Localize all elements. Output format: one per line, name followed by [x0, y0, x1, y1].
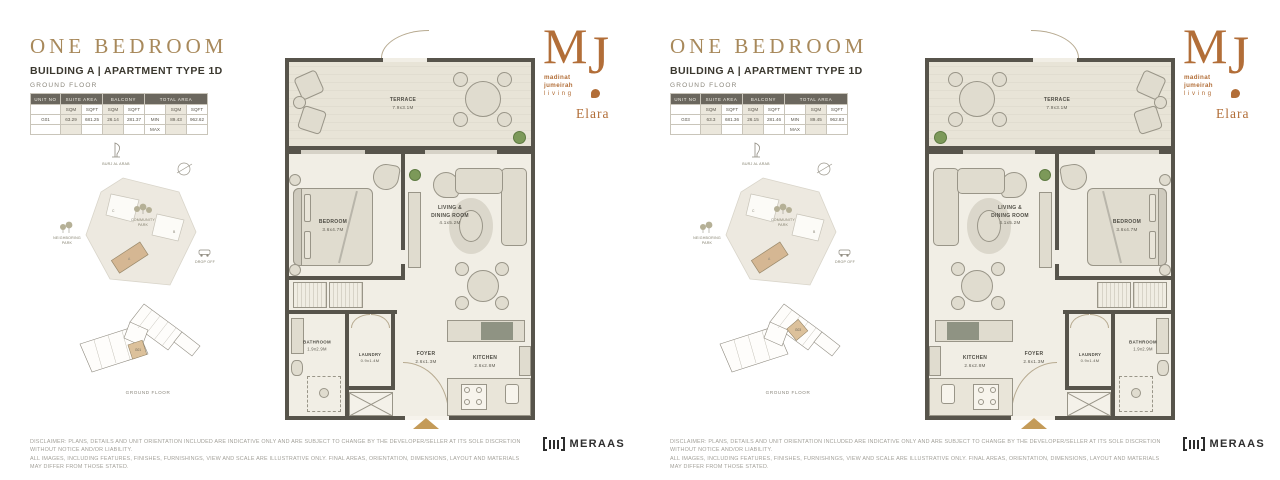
- dining-table: [961, 270, 993, 302]
- community-park-label: COMMUNITY: [771, 218, 795, 222]
- landmark-label: BURJ AL ARAB: [742, 162, 770, 166]
- bedroom-label: BEDROOM 3.6x4.7M: [319, 219, 347, 233]
- meraas-icon: [1183, 437, 1205, 451]
- side-table: [1154, 96, 1167, 109]
- dining-chair: [951, 296, 965, 310]
- project-name: Elara: [576, 106, 609, 122]
- terrace-chair: [948, 112, 963, 127]
- floor-label: GROUND FLOOR: [670, 82, 867, 89]
- floorplan-panel-right: ONE BEDROOM BUILDING A | APARTMENT TYPE …: [640, 0, 1280, 480]
- sofa-chaise: [957, 168, 1005, 194]
- nightstand: [289, 174, 301, 186]
- floor-plan: TERRACE 7.9x3.1M: [925, 28, 1175, 426]
- terrace-chair: [497, 72, 512, 87]
- key-plan-caption: GROUND FLOOR: [766, 390, 811, 395]
- sofa-chaise: [455, 168, 503, 194]
- wall: [391, 314, 395, 390]
- shower-drain: [319, 388, 329, 398]
- stove-burner: [990, 399, 996, 405]
- mj-dot-icon: [591, 89, 600, 98]
- terrace-chair: [497, 112, 512, 127]
- burj-al-arab-icon: [752, 143, 760, 157]
- nightstand: [1159, 174, 1171, 186]
- brochure-page: ONE BEDROOM BUILDING A | APARTMENT TYPE …: [0, 0, 1280, 480]
- col-balcony: BALCONY: [103, 94, 145, 105]
- wall: [1065, 386, 1111, 390]
- wardrobe: [1097, 282, 1131, 308]
- stove-burner: [978, 387, 984, 393]
- highlighted-unit-label: G03: [795, 328, 801, 332]
- svg-text:PARK: PARK: [62, 241, 73, 245]
- kitchen-label: KITCHEN 2.6x2.8M: [963, 355, 987, 369]
- living-room-label: LIVING & DINING ROOM 4.1x5.2M: [431, 205, 469, 227]
- wardrobe: [1133, 282, 1167, 308]
- svg-text:PARK: PARK: [778, 223, 789, 227]
- nightstand: [289, 264, 301, 276]
- kitchen-sink: [505, 384, 519, 404]
- stove-burner: [464, 399, 470, 405]
- wall: [349, 386, 395, 390]
- window: [1095, 150, 1159, 154]
- side-table: [293, 96, 306, 109]
- svg-text:PARK: PARK: [138, 223, 149, 227]
- island-counter-top: [481, 322, 513, 340]
- meraas-wordmark: MERAAS: [1210, 438, 1265, 450]
- nightstand: [1159, 264, 1171, 276]
- north-compass-icon: [177, 163, 192, 175]
- pillow: [304, 194, 311, 222]
- drop-off-label: DROP OFF: [835, 260, 856, 264]
- col-suite-area: SUITE AREA: [61, 94, 103, 105]
- foyer-label: FOYER 2.6x1.3M: [415, 351, 436, 365]
- disclaimer-text: DISCLAIMER: PLANS, DETAILS AND UNIT ORIE…: [30, 438, 522, 472]
- laundry-label: LAUNDRY 0.9x1.4M: [359, 352, 381, 364]
- dining-chair: [991, 296, 1005, 310]
- terrace-door-arc: [1031, 30, 1079, 58]
- bed-headboard: [293, 188, 302, 266]
- plant: [409, 169, 421, 181]
- sliding-door: [963, 150, 1035, 154]
- refrigerator: [929, 346, 941, 376]
- terrace-door-opening: [383, 58, 427, 62]
- stove-burner: [978, 399, 984, 405]
- table-row: G01 63.29 681.25 26.14 281.37 MIN 89.43 …: [31, 115, 208, 125]
- col-unit-no: UNIT NO: [671, 94, 701, 105]
- terrace-door-arc: [381, 30, 429, 58]
- terrace-table: [959, 81, 995, 117]
- stove-burner: [990, 387, 996, 393]
- wall: [1063, 310, 1171, 314]
- tv-console: [408, 192, 421, 268]
- pillow: [1149, 231, 1156, 259]
- north-compass-icon: [817, 163, 832, 175]
- drop-off-car-icon: [199, 250, 210, 257]
- terrace-chair: [992, 112, 1007, 127]
- foyer-label: FOYER 2.6x1.3M: [1023, 351, 1044, 365]
- window: [301, 150, 365, 154]
- wall: [289, 276, 401, 280]
- stove-burner: [476, 387, 482, 393]
- pillow: [304, 231, 311, 259]
- building-subtitle: BUILDING A | APARTMENT TYPE 1D: [30, 65, 227, 77]
- wall: [401, 154, 405, 250]
- terrace-chair: [453, 112, 468, 127]
- mj-wordmark: madinat jumeirah living: [544, 74, 574, 98]
- wardrobe: [329, 282, 363, 308]
- tv-console: [1039, 192, 1052, 268]
- highlighted-unit-label: G01: [135, 348, 141, 352]
- neighboring-park-trees-icon: [700, 222, 712, 233]
- key-plan: G01 GROUND FLOOR: [68, 290, 218, 402]
- floor-label: GROUND FLOOR: [30, 82, 227, 89]
- terrace-table: [465, 81, 501, 117]
- dining-chair: [951, 262, 965, 276]
- mj-logo: M J madinat jumeirah living Elara: [1183, 26, 1273, 126]
- dining-chair: [991, 262, 1005, 276]
- project-name: Elara: [1216, 106, 1249, 122]
- bathroom-vanity: [1156, 318, 1169, 354]
- mj-wordmark: madinat jumeirah living: [1184, 74, 1214, 98]
- laundry-label: LAUNDRY 0.9x1.4M: [1079, 352, 1101, 364]
- refrigerator: [519, 346, 531, 376]
- page-title: ONE BEDROOM: [670, 34, 867, 59]
- table-header-row: UNIT NO SUITE AREA BALCONY TOTAL AREA: [671, 94, 848, 105]
- plant: [513, 131, 526, 144]
- terrace-label: TERRACE 7.9x3.1M: [390, 97, 416, 111]
- entrance-marker: [413, 418, 439, 429]
- dining-chair: [455, 262, 469, 276]
- key-plan: G03 GROUND FLOOR: [708, 290, 858, 402]
- shower-drain: [1131, 388, 1141, 398]
- wall: [1059, 276, 1171, 280]
- mj-monogram-j-icon: J: [588, 31, 609, 80]
- stove-burner: [464, 387, 470, 393]
- mj-dot-icon: [1231, 89, 1240, 98]
- dining-table: [467, 270, 499, 302]
- toilet: [1157, 360, 1169, 376]
- dining-chair: [495, 262, 509, 276]
- entrance-marker: [1021, 418, 1047, 429]
- storage-closet: [1067, 392, 1111, 416]
- bathroom-label: BATHROOM 1.9x2.9M: [1129, 340, 1157, 353]
- mj-monogram-j-icon: J: [1228, 31, 1249, 80]
- drop-off-label: DROP OFF: [195, 260, 216, 264]
- wall: [289, 310, 397, 314]
- burj-al-arab-icon: [112, 143, 120, 157]
- disclaimer-text: DISCLAIMER: PLANS, DETAILS AND UNIT ORIE…: [670, 438, 1162, 472]
- site-map: BURJ AL ARAB C B COMMUNITY PARK: [693, 138, 873, 296]
- col-total-area: TOTAL AREA: [145, 94, 208, 105]
- mj-monogram-m-icon: M: [543, 26, 587, 67]
- storage-closet: [349, 392, 393, 416]
- bedroom-label: BEDROOM 3.6x4.7M: [1113, 219, 1141, 233]
- terrace-label: TERRACE 7.9x3.1M: [1044, 97, 1070, 111]
- title-block: ONE BEDROOM BUILDING A | APARTMENT TYPE …: [670, 34, 867, 89]
- wardrobe: [293, 282, 327, 308]
- meraas-icon: [543, 437, 565, 451]
- unit-number: G03: [671, 115, 701, 125]
- unit-number: G01: [31, 115, 61, 125]
- kitchen-label: KITCHEN 2.6x2.8M: [473, 355, 497, 369]
- col-unit-no: UNIT NO: [31, 94, 61, 105]
- table-row: G03 63.3 681.36 26.15 281.46 MIN 89.45 9…: [671, 115, 848, 125]
- neighboring-park-label: NEIGHBORING: [53, 236, 81, 240]
- terrace-chair: [948, 72, 963, 87]
- island-counter-top: [947, 322, 979, 340]
- area-table: UNIT NO SUITE AREA BALCONY TOTAL AREA SQ…: [30, 93, 208, 135]
- floor-plan: TERRACE 7.9x3.1M: [285, 28, 535, 426]
- col-balcony: BALCONY: [743, 94, 785, 105]
- neighboring-park-trees-icon: [60, 222, 72, 233]
- mj-monogram-m-icon: M: [1183, 26, 1227, 67]
- bed-headboard: [1158, 188, 1167, 266]
- building-subtitle: BUILDING A | APARTMENT TYPE 1D: [670, 65, 867, 77]
- plant: [934, 131, 947, 144]
- col-total-area: TOTAL AREA: [785, 94, 848, 105]
- sofa: [933, 168, 959, 246]
- dining-chair: [455, 296, 469, 310]
- living-room-label: LIVING & DINING ROOM 4.1x5.2M: [991, 205, 1029, 227]
- meraas-logo: MERAAS: [1183, 437, 1265, 451]
- table-subheader-row: SQM SQFT SQM SQFT SQM SQFT: [671, 105, 848, 115]
- key-plan-caption: GROUND FLOOR: [126, 390, 171, 395]
- svg-text:PARK: PARK: [702, 241, 713, 245]
- mj-logo: M J madinat jumeirah living Elara: [543, 26, 633, 126]
- terrace-chair: [453, 72, 468, 87]
- sofa: [501, 168, 527, 246]
- terrace-chair: [992, 72, 1007, 87]
- drop-off-car-icon: [839, 250, 850, 257]
- area-table: UNIT NO SUITE AREA BALCONY TOTAL AREA SQ…: [670, 93, 848, 135]
- col-suite-area: SUITE AREA: [701, 94, 743, 105]
- meraas-wordmark: MERAAS: [570, 438, 625, 450]
- landmark-label: BURJ AL ARAB: [102, 162, 130, 166]
- sliding-door: [425, 150, 497, 154]
- page-title: ONE BEDROOM: [30, 34, 227, 59]
- wall: [1111, 314, 1115, 416]
- kitchen-sink: [941, 384, 955, 404]
- stove-burner: [476, 399, 482, 405]
- building-outline: [720, 304, 840, 372]
- terrace-door-opening: [1033, 58, 1077, 62]
- toilet: [291, 360, 303, 376]
- table-subheader-row: SQM SQFT SQM SQFT SQM SQFT: [31, 105, 208, 115]
- wall: [1055, 154, 1059, 250]
- pillow: [1149, 194, 1156, 222]
- wall: [1065, 314, 1069, 390]
- neighboring-park-label: NEIGHBORING: [693, 236, 721, 240]
- table-row: MAX: [31, 125, 208, 135]
- plant: [1039, 169, 1051, 181]
- site-map: BURJ AL ARAB C B COMMUNITY PARK: [53, 138, 233, 296]
- floorplan-panel-left: ONE BEDROOM BUILDING A | APARTMENT TYPE …: [0, 0, 640, 480]
- community-park-label: COMMUNITY: [131, 218, 155, 222]
- dining-chair: [495, 296, 509, 310]
- wall: [401, 264, 405, 280]
- building-outline: [80, 304, 200, 372]
- title-block: ONE BEDROOM BUILDING A | APARTMENT TYPE …: [30, 34, 227, 89]
- bathroom-label: BATHROOM 1.9x2.9M: [303, 340, 331, 353]
- table-header-row: UNIT NO SUITE AREA BALCONY TOTAL AREA: [31, 94, 208, 105]
- table-row: MAX: [671, 125, 848, 135]
- meraas-logo: MERAAS: [543, 437, 625, 451]
